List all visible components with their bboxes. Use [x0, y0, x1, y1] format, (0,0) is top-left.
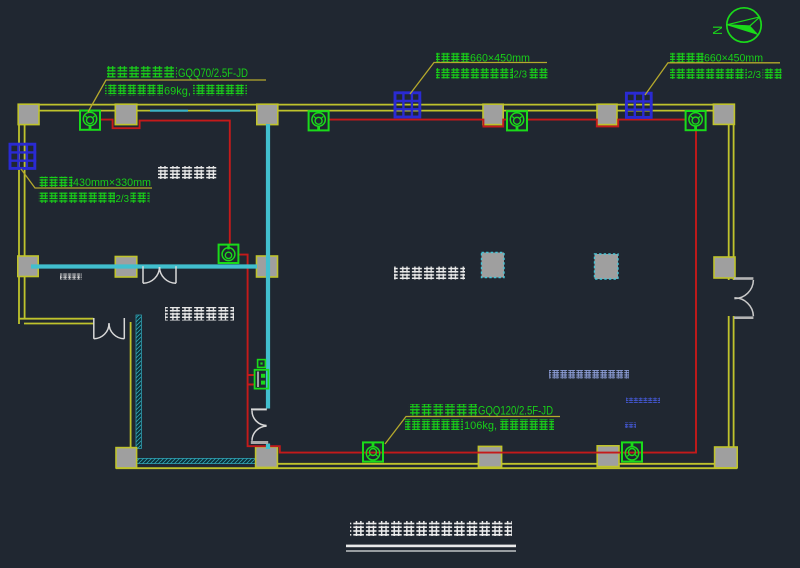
svg-text:106kg,: 106kg,: [464, 420, 497, 432]
svg-text:N: N: [710, 26, 725, 35]
svg-text:2/3: 2/3: [748, 69, 762, 81]
svg-text:GQQ70/2.5F-JD: GQQ70/2.5F-JD: [178, 68, 248, 80]
svg-text:2/3: 2/3: [514, 69, 528, 81]
svg-text:2/3: 2/3: [116, 193, 130, 205]
svg-text:69kg,: 69kg,: [164, 86, 191, 98]
svg-text:GQQ120/2.5F-JD: GQQ120/2.5F-JD: [478, 405, 553, 417]
svg-text:430mm×330mm: 430mm×330mm: [73, 177, 151, 189]
